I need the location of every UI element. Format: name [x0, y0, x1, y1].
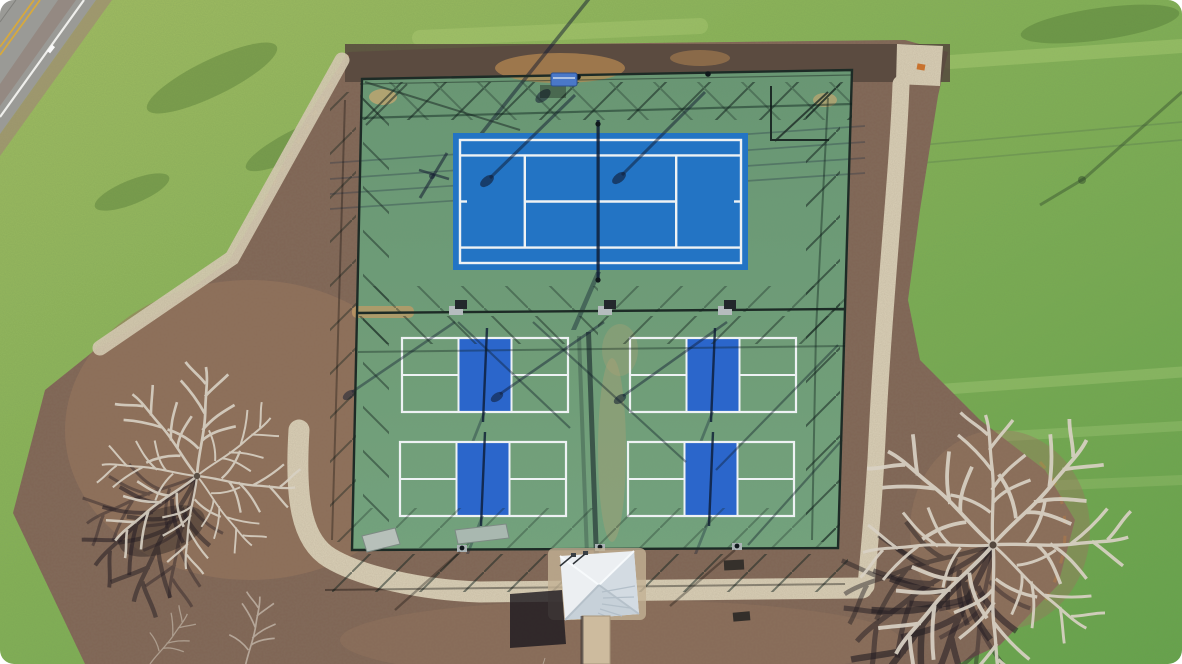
pavilion-walkway — [582, 616, 610, 664]
court-complex — [325, 0, 865, 610]
pavilion-shadow — [510, 590, 566, 648]
tennis-net-post — [595, 121, 600, 126]
aerial-photo-canvas — [0, 0, 1182, 664]
dark-bench-2 — [733, 611, 751, 621]
dark-bench-1 — [724, 559, 744, 570]
tree-1-trunk — [194, 473, 200, 479]
tennis-net-post — [595, 277, 600, 282]
tennis-net — [597, 120, 600, 282]
tree-2-trunk — [989, 541, 996, 548]
aerial-photo — [0, 0, 1182, 664]
